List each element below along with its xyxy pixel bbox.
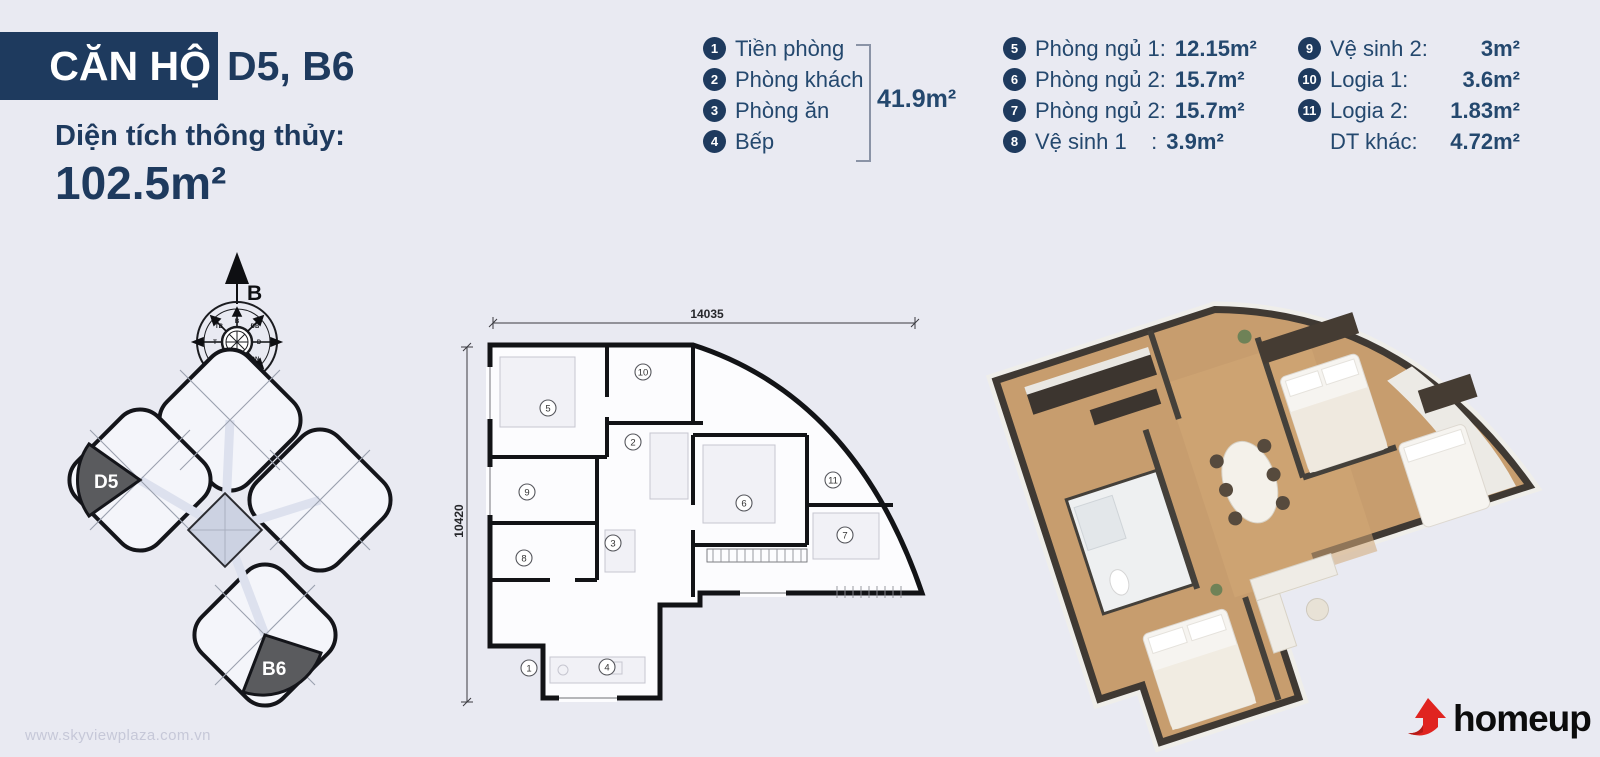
legend-label: Vệ sinh 2: — [1330, 36, 1428, 62]
dimension-width-label: 14035 — [690, 307, 724, 321]
net-area-label: Diện tích thông thủy: — [55, 120, 345, 153]
legend-item: 7 Phòng ngủ 2: 15.7m² — [1003, 95, 1257, 126]
legend-item: 6 Phòng ngủ 2: 15.7m² — [1003, 64, 1257, 95]
apartment-units-title: D5, B6 — [227, 32, 355, 100]
legend-area-value: 12.15m² — [1175, 36, 1257, 62]
compass-north-arrow — [225, 252, 249, 304]
unit-b6-label: B6 — [262, 659, 286, 680]
legend-number-badge: 5 — [1003, 37, 1026, 60]
legend-label: Phòng ngủ 1: — [1035, 36, 1166, 62]
legend-group-total-area: 41.9m² — [877, 85, 956, 114]
floor-plan-2d: 14035 10420 — [455, 305, 950, 715]
legend-area-value: 3.9m² — [1166, 129, 1223, 155]
legend-number-badge: 7 — [1003, 99, 1026, 122]
net-area-value: 102.5m² — [55, 156, 226, 210]
legend-item: 10 Logia 1: 3.6m² — [1298, 64, 1520, 95]
legend-number-badge: 4 — [703, 130, 726, 153]
apartment-title-box: CĂN HỘ — [0, 32, 218, 100]
legend-area-value: 1.83m² — [1450, 98, 1520, 124]
building-floor-plate: D5 B6 — [50, 335, 400, 720]
legend-group-2: 5 Phòng ngủ 1: 12.15m² 6 Phòng ngủ 2: 15… — [1003, 33, 1257, 157]
svg-text:10: 10 — [638, 368, 649, 379]
legend-group-1: 1 Tiền phòng 2 Phòng khách 3 Phòng ăn 4 … — [703, 33, 863, 157]
svg-text:ĐB: ĐB — [251, 324, 260, 330]
svg-text:8: 8 — [521, 554, 526, 565]
legend-label: Phòng khách — [735, 67, 863, 93]
legend-label: Vệ sinh 1 : — [1035, 129, 1157, 155]
legend-number-badge: 8 — [1003, 130, 1026, 153]
legend-item: 5 Phòng ngủ 1: 12.15m² — [1003, 33, 1257, 64]
legend-item: 1 Tiền phòng — [703, 33, 863, 64]
legend-item: 4 Bếp — [703, 126, 863, 157]
legend-number-badge: 6 — [1003, 68, 1026, 91]
legend-area-value: 15.7m² — [1175, 67, 1245, 93]
legend-area-value: 4.72m² — [1450, 129, 1520, 155]
legend-label: Bếp — [735, 129, 774, 155]
legend-label: Phòng ăn — [735, 98, 829, 124]
svg-text:11: 11 — [828, 476, 838, 487]
legend-label: Phòng ngủ 2: — [1035, 98, 1166, 124]
legend-item: 11 Logia 2: 1.83m² — [1298, 95, 1520, 126]
unit-d5-label: D5 — [94, 472, 119, 493]
svg-text:3: 3 — [610, 539, 615, 550]
legend-number-badge: 3 — [703, 99, 726, 122]
svg-text:2: 2 — [630, 438, 635, 449]
legend-label: Tiền phòng — [735, 36, 844, 62]
svg-text:5: 5 — [545, 404, 550, 415]
svg-text:TB: TB — [215, 324, 224, 330]
legend-item: 8 Vệ sinh 1 : 3.9m² — [1003, 126, 1257, 157]
legend-group-bracket — [856, 44, 871, 162]
legend-group-3: 9 Vệ sinh 2: 3m² 10 Logia 1: 3.6m² 11 Lo… — [1298, 33, 1520, 157]
legend-item: 9 Vệ sinh 2: 3m² — [1298, 33, 1520, 64]
svg-text:4: 4 — [604, 663, 609, 674]
legend-number-badge: 11 — [1298, 99, 1321, 122]
floor-plan-3d-render — [975, 235, 1540, 740]
svg-text:7: 7 — [842, 531, 847, 542]
legend-item: DT khác: 4.72m² — [1298, 126, 1520, 157]
legend-number-badge: 9 — [1298, 37, 1321, 60]
legend-label: Logia 1: — [1330, 67, 1408, 93]
legend-number-badge: 1 — [703, 37, 726, 60]
website-watermark: www.skyviewplaza.com.vn — [25, 727, 211, 744]
legend-number-badge: 10 — [1298, 68, 1321, 91]
legend-item: 3 Phòng ăn — [703, 95, 863, 126]
legend-area-value: 3.6m² — [1463, 67, 1520, 93]
legend-number-badge: 2 — [703, 68, 726, 91]
homeup-logo-text: homeup — [1453, 698, 1591, 740]
legend-label: DT khác: — [1330, 129, 1418, 155]
legend-area-value: 15.7m² — [1175, 98, 1245, 124]
homeup-logo: homeup — [1405, 697, 1591, 741]
legend-label: Logia 2: — [1330, 98, 1408, 124]
svg-text:B: B — [235, 319, 240, 325]
compass-main-label: B — [247, 282, 262, 305]
legend-label: Phòng ngủ 2: — [1035, 67, 1166, 93]
homeup-logo-icon — [1405, 697, 1447, 741]
legend-area-value: 3m² — [1481, 36, 1520, 62]
brochure-page: CĂN HỘ D5, B6 Diện tích thông thủy: 102.… — [0, 0, 1600, 757]
legend-item: 2 Phòng khách — [703, 64, 863, 95]
dimension-height-label: 10420 — [452, 504, 466, 538]
svg-text:9: 9 — [524, 488, 529, 499]
svg-text:1: 1 — [526, 664, 531, 675]
svg-text:6: 6 — [741, 499, 746, 510]
